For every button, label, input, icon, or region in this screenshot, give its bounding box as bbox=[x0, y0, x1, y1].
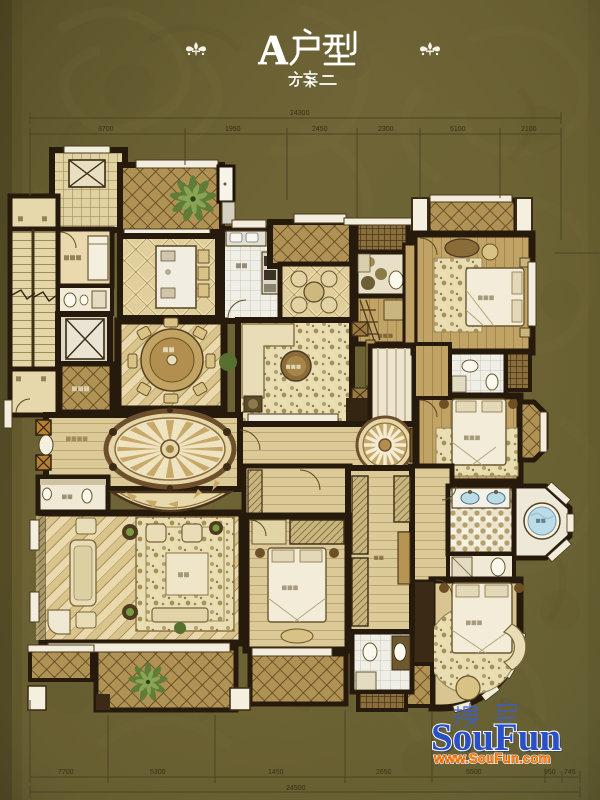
svg-text:2450: 2450 bbox=[312, 126, 328, 133]
svg-text:5300: 5300 bbox=[150, 769, 166, 776]
svg-text:7700: 7700 bbox=[58, 769, 74, 776]
svg-text:24300: 24300 bbox=[290, 110, 310, 117]
svg-text:3700: 3700 bbox=[98, 126, 114, 133]
svg-text:2100: 2100 bbox=[521, 126, 537, 133]
svg-text:1450: 1450 bbox=[268, 769, 284, 776]
svg-text:5100: 5100 bbox=[450, 126, 466, 133]
svg-text:www.SouFun.com: www.SouFun.com bbox=[433, 751, 551, 766]
svg-text:2300: 2300 bbox=[378, 126, 394, 133]
svg-text:2650: 2650 bbox=[376, 769, 392, 776]
svg-text:24500: 24500 bbox=[286, 785, 306, 792]
svg-text:1950: 1950 bbox=[225, 126, 241, 133]
